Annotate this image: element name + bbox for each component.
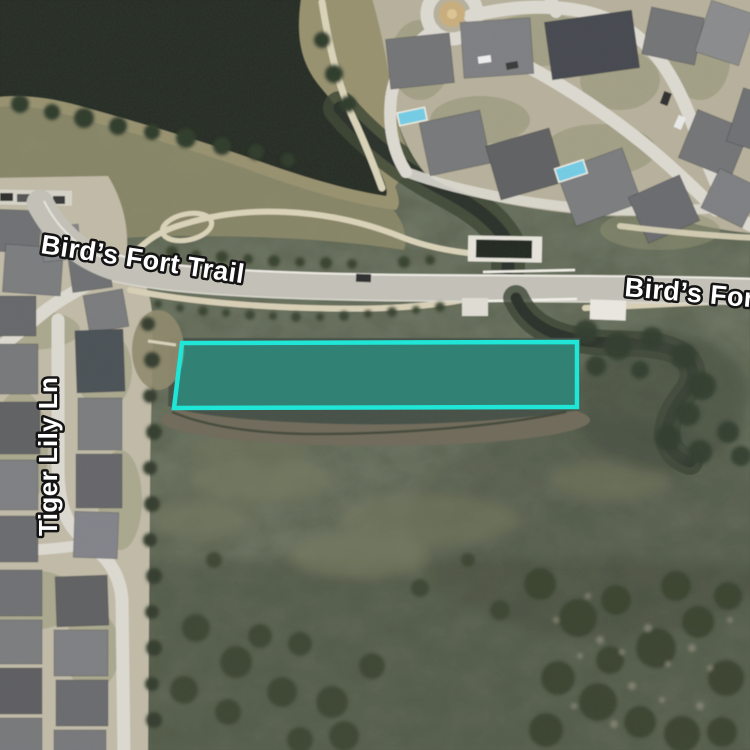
street-label-tiger-lily-ln: Tiger Lily Ln: [33, 377, 63, 536]
satellite-map[interactable]: Bird’s Fort Trail Bird’s Fort Trail Tige…: [0, 0, 750, 750]
parcel-highlight[interactable]: [174, 342, 577, 408]
